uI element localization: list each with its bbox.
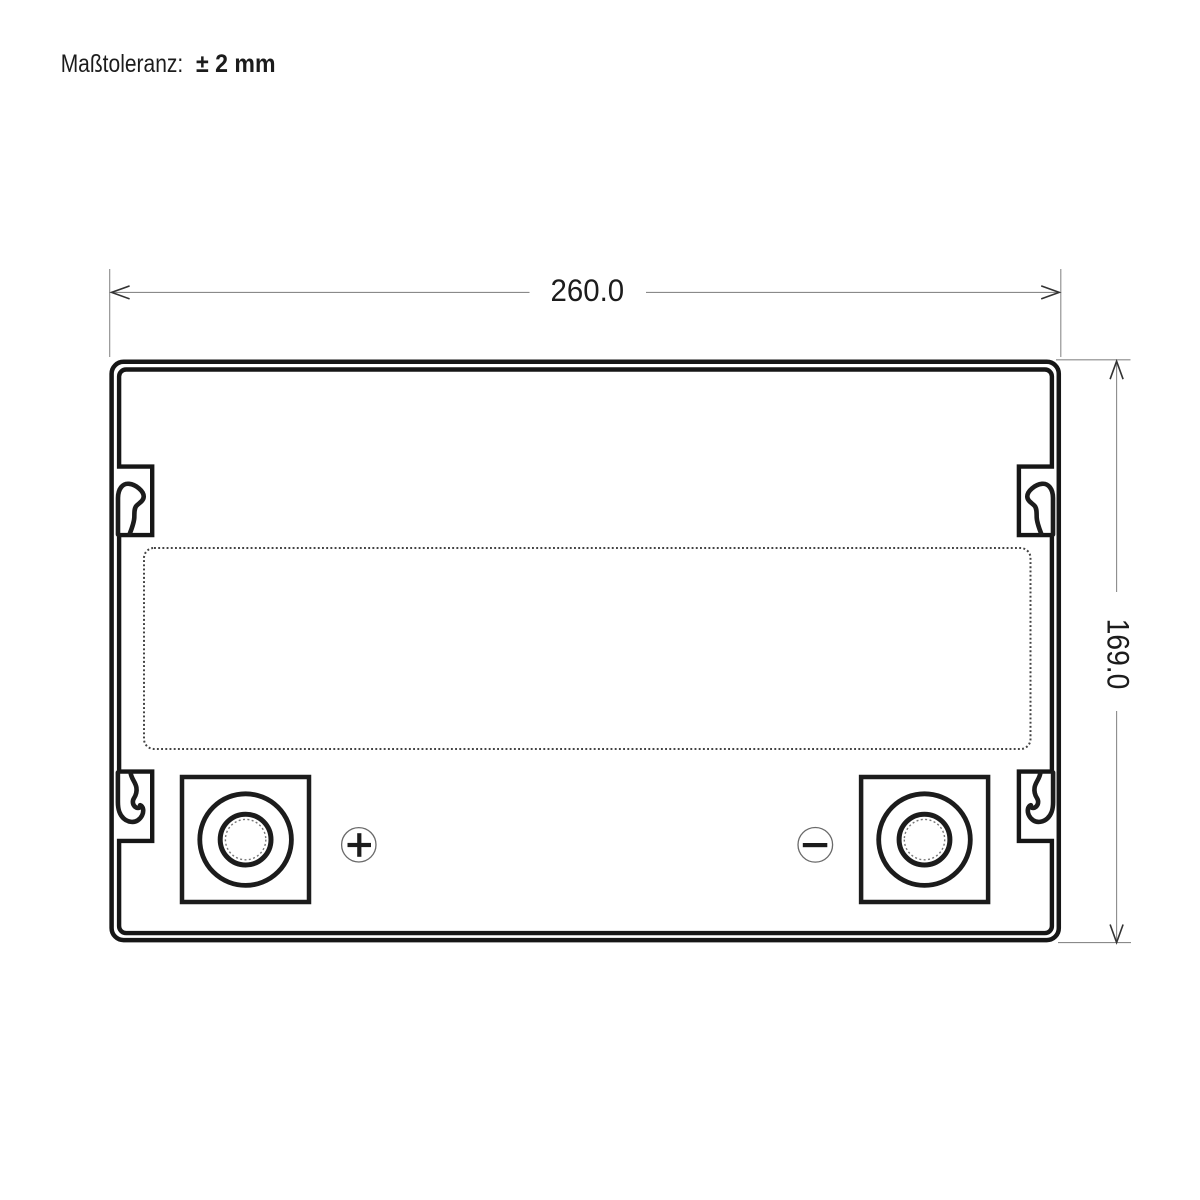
svg-text:169.0: 169.0 bbox=[1100, 619, 1135, 690]
svg-text:Maßtoleranz:: Maßtoleranz: bbox=[61, 49, 183, 77]
svg-text:± 2 mm: ± 2 mm bbox=[196, 50, 276, 78]
svg-text:260.0: 260.0 bbox=[550, 274, 624, 308]
